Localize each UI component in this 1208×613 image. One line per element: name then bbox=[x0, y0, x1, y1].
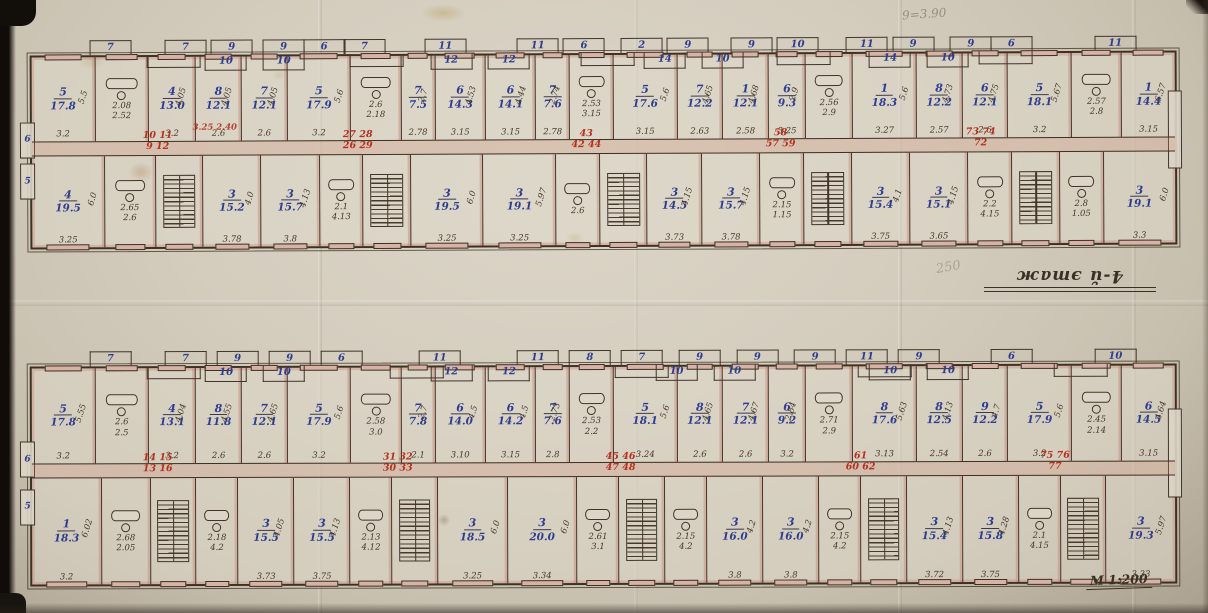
balcony-number: 8 bbox=[570, 351, 610, 364]
fixture-dim: 3.15 bbox=[582, 109, 601, 119]
kitchen-bath-cell: 2.134.12 bbox=[350, 478, 392, 584]
room-area: 18.5 bbox=[460, 531, 486, 543]
bathtub-icon bbox=[106, 78, 138, 89]
dim-width: 3.75 bbox=[871, 232, 890, 242]
dim-depth: 5.6 bbox=[898, 86, 912, 102]
fixture-dim: 2.68 bbox=[116, 533, 135, 543]
room-cell: 315.13.654.15 bbox=[910, 152, 969, 244]
sink-icon bbox=[825, 88, 834, 97]
dim-depth: 5.55 bbox=[73, 403, 88, 424]
fixture-dim: 1.15 bbox=[773, 210, 792, 220]
balcony-number: 11 bbox=[518, 351, 558, 364]
room-area: 19.5 bbox=[55, 202, 81, 214]
bathtub-icon bbox=[361, 77, 391, 88]
fixture-dim: 2.1 bbox=[334, 202, 348, 212]
entrance-porch-tab bbox=[580, 53, 634, 66]
dim-width: 2.6 bbox=[258, 451, 272, 461]
fixture-dim: 2.15 bbox=[773, 200, 792, 210]
balcony-number: 10 bbox=[703, 52, 743, 65]
bathtub-icon bbox=[578, 76, 604, 87]
staircase-cell bbox=[600, 153, 648, 245]
bathtub-icon bbox=[115, 180, 145, 191]
corridor: 14 1513 1631 3230 3345 4647 486160 6275 … bbox=[32, 461, 1175, 479]
fixture-dim: 2.08 bbox=[112, 101, 131, 111]
balcony-number: 9 bbox=[270, 352, 310, 365]
window-mark bbox=[674, 580, 699, 586]
dim-width: 3.78 bbox=[223, 235, 242, 245]
sink-icon bbox=[1092, 405, 1101, 414]
room-number: 3 bbox=[257, 518, 275, 531]
balcony-number: 6 bbox=[991, 350, 1031, 363]
apartment-numbers-line: 9 12 bbox=[143, 141, 173, 152]
window-mark bbox=[769, 241, 795, 247]
dim-width: 3.2 bbox=[1033, 125, 1047, 135]
room-number: 5 bbox=[54, 403, 72, 416]
staircase-cell bbox=[156, 155, 204, 247]
room-number: 6 bbox=[451, 402, 469, 415]
dim-width: 3.15 bbox=[1139, 449, 1158, 459]
dim-width: 3.2 bbox=[56, 129, 70, 139]
red-dimension-note: 3.25 2.40 bbox=[193, 123, 237, 133]
dim-depth: 5.6 bbox=[333, 88, 347, 104]
room-number: 3 bbox=[726, 517, 744, 530]
kitchen-bath-cell: 2.24.15 bbox=[968, 152, 1012, 244]
sink-icon bbox=[587, 89, 596, 98]
room-number: 5 bbox=[1031, 401, 1049, 414]
dim-width: 2.6 bbox=[212, 451, 226, 461]
apartment-numbers-line: 60 62 bbox=[846, 462, 876, 473]
balcony-number: 10 bbox=[778, 38, 818, 51]
pencil-note-middle: 250 bbox=[935, 258, 962, 277]
room-number: 3 bbox=[511, 187, 529, 200]
room-number: 3 bbox=[981, 516, 999, 529]
fixture-dim: 2.15 bbox=[830, 531, 849, 541]
room-cell: 319.53.256.0 bbox=[411, 154, 484, 246]
bathtub-icon bbox=[673, 509, 698, 520]
sink-icon bbox=[1035, 521, 1044, 530]
building-outline: 65517.83.25.52.082.52413.03.24.05812.12.… bbox=[30, 51, 1178, 250]
dim-width: 2.54 bbox=[930, 449, 949, 459]
balcony-number: 10 bbox=[714, 365, 754, 378]
sink-icon bbox=[1077, 189, 1086, 198]
kitchen-bath-cell: 2.154.2 bbox=[819, 476, 861, 582]
balcony-tab: 14 bbox=[644, 53, 686, 69]
dim-width: 3.2 bbox=[60, 572, 74, 582]
dim-width: 3.25 bbox=[510, 233, 529, 243]
window-mark bbox=[115, 244, 145, 250]
dim-width: 3.8 bbox=[728, 571, 742, 581]
dim-width: 3.15 bbox=[636, 126, 655, 136]
stair-flight-icon bbox=[157, 500, 189, 561]
fixture-dim: 4.2 bbox=[210, 543, 224, 553]
kitchen-bath-cell: 2.154.2 bbox=[665, 477, 707, 583]
dim-width: 2.78 bbox=[409, 127, 428, 137]
room-number: 3 bbox=[926, 516, 944, 529]
balcony-number: 11 bbox=[1095, 37, 1135, 50]
stair-flight-icon bbox=[399, 500, 431, 561]
balcony-number: 11 bbox=[518, 39, 558, 52]
fixture-dim: 4.15 bbox=[980, 210, 999, 220]
room-cell: 320.03.346.0 bbox=[508, 477, 578, 583]
dim-width: 2.58 bbox=[736, 126, 755, 136]
bathtub-icon bbox=[585, 509, 610, 520]
bathtub-icon bbox=[361, 394, 391, 405]
balcony-tab: 10 bbox=[927, 364, 969, 380]
room-area: 19.5 bbox=[434, 201, 460, 213]
dim-width: 3.2 bbox=[780, 450, 794, 460]
dim-depth: 5.63 bbox=[895, 401, 910, 422]
balcony-number: 10 bbox=[928, 364, 968, 377]
paper-stain bbox=[420, 4, 466, 22]
fixture-dim: 2.6 bbox=[123, 213, 137, 223]
kitchen-bath-cell: 2.6 bbox=[556, 154, 600, 246]
scan-edge-shadow bbox=[0, 603, 1208, 613]
fixture-dim: 1.05 bbox=[1072, 209, 1091, 219]
dim-width: 3.8 bbox=[284, 234, 298, 244]
staircase-cell bbox=[363, 154, 411, 246]
fixture-dim: 2.61 bbox=[589, 532, 608, 542]
dim-depth: 4.2 bbox=[801, 518, 815, 534]
fixture-dim: 4.15 bbox=[1030, 541, 1049, 551]
staircase-cell bbox=[619, 477, 665, 583]
stair-flight-icon bbox=[1019, 171, 1052, 224]
dim-depth: 2.7 bbox=[417, 404, 431, 420]
stair-flight-icon bbox=[370, 174, 403, 227]
window-mark bbox=[565, 242, 591, 248]
room-number: 3 bbox=[872, 185, 890, 198]
dim-width: 2.63 bbox=[690, 126, 709, 136]
window-mark bbox=[870, 579, 897, 585]
dim-depth: 4.13 bbox=[298, 188, 313, 209]
room-area: 17.6 bbox=[632, 97, 658, 109]
room-number: 3 bbox=[438, 187, 456, 200]
fixture-dim: 4.2 bbox=[679, 542, 693, 552]
fixture-dim: 2.18 bbox=[366, 110, 385, 120]
dim-depth: 6.0 bbox=[1158, 187, 1172, 203]
dim-width: 3.27 bbox=[875, 125, 894, 135]
room-number: 4 bbox=[59, 189, 77, 202]
kitchen-bath-cell: 2.151.15 bbox=[760, 153, 804, 245]
room-cell: 316.03.84.2 bbox=[763, 476, 819, 582]
room-area: 17.6 bbox=[872, 415, 898, 427]
room-number: 5 bbox=[1031, 82, 1049, 95]
room-area: 16.0 bbox=[778, 530, 804, 542]
window-mark bbox=[205, 581, 230, 587]
room-number: 1 bbox=[1140, 82, 1158, 95]
room-area: 15.4 bbox=[868, 199, 894, 211]
balcony-number: 9 bbox=[737, 351, 777, 364]
fixture-dim: 4.12 bbox=[362, 543, 381, 553]
scan-edge-shadow bbox=[1202, 0, 1208, 613]
fixture-dim: 2.52 bbox=[112, 111, 131, 121]
room-number: 3 bbox=[281, 188, 299, 201]
fixture-dim: 2.8 bbox=[1074, 199, 1088, 209]
dim-width: 3.75 bbox=[313, 572, 332, 582]
sink-icon bbox=[212, 523, 221, 532]
balcony-number: 11 bbox=[420, 351, 460, 364]
dim-depth: 5.6 bbox=[1053, 403, 1067, 419]
apartment-numbers-red: 45 4647 48 bbox=[606, 452, 636, 474]
staircase-cell bbox=[392, 477, 438, 583]
room-number: 6 bbox=[502, 402, 520, 415]
apartment-numbers-red: 14 1513 16 bbox=[143, 453, 173, 475]
fixture-dim: 2.71 bbox=[820, 416, 839, 426]
balcony-tab: 12 bbox=[488, 53, 530, 69]
dim-width: 3.72 bbox=[925, 570, 944, 580]
room-area: 19.1 bbox=[507, 200, 533, 212]
dim-width: 3.8 bbox=[784, 571, 798, 581]
entrance-porch-tab bbox=[147, 55, 201, 68]
room-cell: 118.33.26.02 bbox=[32, 478, 102, 584]
entrance-porch-tab bbox=[615, 365, 669, 378]
dim-width: 3.15 bbox=[451, 127, 470, 137]
loggia-number: 5 bbox=[24, 503, 30, 512]
stair-flight-icon bbox=[626, 499, 658, 560]
window-mark bbox=[629, 580, 656, 586]
room-cell: 315.53.754.13 bbox=[294, 478, 350, 584]
dim-width: 3.25 bbox=[59, 235, 78, 245]
fixture-dim: 2.58 bbox=[366, 417, 385, 427]
floor-caption-text: 4-й этаж bbox=[1016, 266, 1123, 286]
window-mark bbox=[977, 240, 1003, 246]
sink-icon bbox=[366, 522, 375, 531]
window-mark bbox=[814, 241, 842, 247]
room-cell: 315.53.734.05 bbox=[238, 478, 294, 584]
dim-depth: 5.97 bbox=[1154, 515, 1169, 536]
room-number: 1 bbox=[876, 83, 894, 96]
sink-icon bbox=[587, 406, 596, 415]
balcony-number: 2 bbox=[622, 39, 662, 52]
floor-caption-underline bbox=[984, 287, 1156, 292]
entrance-porch-tab bbox=[1054, 364, 1108, 377]
room-cell: 314.53.734.15 bbox=[647, 153, 702, 245]
room-cell: 315.83.754.28 bbox=[963, 476, 1019, 582]
fixture-dim: 2.57 bbox=[1087, 96, 1106, 106]
pencil-note-top-right: 9=3.90 bbox=[902, 5, 947, 22]
loggia-number: 6 bbox=[24, 455, 30, 464]
apartment-numbers-red: 5857 59 bbox=[766, 128, 796, 150]
balcony-number: 7 bbox=[622, 351, 662, 364]
apartment-numbers-red: 31 3230 33 bbox=[383, 453, 413, 475]
dim-depth: 5.6 bbox=[333, 405, 347, 421]
kitchen-bath-cell: 2.682.05 bbox=[102, 478, 151, 584]
room-area: 19.3 bbox=[1128, 529, 1154, 541]
sink-icon bbox=[371, 90, 380, 99]
balcony-number: 10 bbox=[206, 55, 246, 68]
balcony-number: 7 bbox=[165, 41, 205, 54]
fixture-dim: 4.2 bbox=[833, 541, 847, 551]
apartment-numbers-line: 57 59 bbox=[766, 139, 796, 150]
window-mark bbox=[373, 243, 401, 249]
sink-icon bbox=[825, 406, 834, 415]
balcony-number: 11 bbox=[847, 38, 887, 51]
bathtub-icon bbox=[328, 179, 354, 190]
room-cell: 318.53.256.0 bbox=[438, 477, 508, 583]
fixture-dim: 2.9 bbox=[822, 108, 836, 118]
bathtub-icon bbox=[1082, 73, 1112, 84]
dim-width: 2.57 bbox=[930, 125, 949, 135]
balcony-number: 6 bbox=[991, 37, 1031, 50]
room-cell: 315.43.754.1 bbox=[852, 152, 911, 244]
room-number: 3 bbox=[782, 517, 800, 530]
balcony-tab: 12 bbox=[488, 365, 530, 381]
dim-depth: 4.15 bbox=[738, 186, 753, 207]
window-mark bbox=[586, 580, 611, 586]
balcony-number: 14 bbox=[870, 52, 910, 65]
room-area: 18.1 bbox=[1027, 96, 1053, 108]
window-mark bbox=[160, 581, 187, 587]
balcony-number: 9 bbox=[264, 40, 304, 53]
dim-width: 3.3 bbox=[1133, 231, 1147, 241]
bathtub-icon bbox=[204, 510, 229, 521]
balcony-number: 9 bbox=[668, 39, 708, 52]
room-number: 3 bbox=[533, 517, 551, 530]
room-number: 5 bbox=[310, 402, 328, 415]
balcony-number: 10 bbox=[206, 366, 246, 379]
balcony-number: 10 bbox=[1095, 350, 1135, 363]
dim-width: 2.6 bbox=[978, 449, 992, 459]
bathtub-icon bbox=[565, 183, 591, 194]
staircase-cell bbox=[1012, 152, 1060, 244]
dim-width: 3.73 bbox=[257, 572, 276, 582]
dim-width: 3.10 bbox=[451, 450, 470, 460]
sink-icon bbox=[835, 521, 844, 530]
room-area: 17.9 bbox=[1027, 414, 1053, 426]
fixture-dim: 2.6 bbox=[571, 206, 585, 216]
dim-width: 2.1 bbox=[411, 451, 425, 461]
apartment-numbers-red: 73 7472 bbox=[966, 127, 996, 149]
room-number: 3 bbox=[1131, 184, 1149, 197]
balcony-number: 9 bbox=[795, 350, 835, 363]
dim-depth: 6.02 bbox=[80, 517, 95, 538]
room-cell: 315.43.724.13 bbox=[907, 476, 963, 582]
fixture-dim: 2.6 bbox=[115, 418, 129, 428]
balcony-tab: 14 bbox=[869, 52, 911, 68]
sink-icon bbox=[121, 523, 130, 532]
stair-flight-icon bbox=[163, 175, 196, 228]
window-mark bbox=[329, 243, 355, 249]
kitchen-bath-cell: 2.14.13 bbox=[320, 155, 364, 247]
room-number: 5 bbox=[310, 85, 328, 98]
scanned-floor-plan-sheet: 9=3.90 7799671111629910119961165517.83.2… bbox=[0, 0, 1208, 613]
fixture-dim: 3.0 bbox=[369, 427, 383, 437]
window-mark bbox=[828, 579, 853, 585]
window-mark bbox=[111, 581, 140, 587]
floor-caption: 4-й этаж bbox=[984, 266, 1156, 292]
apartment-numbers-line: 26 29 bbox=[343, 141, 373, 152]
balcony-number: 6 bbox=[322, 352, 362, 365]
dim-depth: 4.0 bbox=[243, 191, 257, 207]
room-number: 3 bbox=[464, 518, 482, 531]
balcony-tab: 10 bbox=[713, 365, 755, 381]
window-mark bbox=[1022, 240, 1050, 246]
bathtub-icon bbox=[1027, 508, 1052, 519]
balcony-number: 9 bbox=[212, 41, 252, 54]
dim-depth: 4.15 bbox=[946, 185, 961, 206]
apartment-numbers-line: 47 48 bbox=[606, 463, 636, 474]
stair-flight-icon bbox=[811, 172, 844, 225]
room-area: 18.3 bbox=[872, 96, 898, 108]
dim-width: 3.2 bbox=[312, 451, 326, 461]
room-number: 3 bbox=[722, 186, 740, 199]
room-cell: 319.33.335.97 bbox=[1106, 476, 1175, 582]
room-cell: 419.53.256.0 bbox=[32, 156, 105, 248]
loggia-number: 6 bbox=[24, 136, 30, 145]
balcony-number: 14 bbox=[645, 53, 685, 66]
balcony-tab: 10 bbox=[702, 52, 744, 68]
sink-icon bbox=[1092, 86, 1101, 95]
balcony-tab: 10 bbox=[263, 366, 305, 382]
dim-width: 2.6 bbox=[258, 128, 272, 138]
dim-depth: 4.5 bbox=[467, 404, 481, 420]
window-mark bbox=[610, 242, 638, 248]
room-area: 18.1 bbox=[632, 415, 658, 427]
apartment-numbers-line: 72 bbox=[966, 138, 996, 149]
balcony-number: 10 bbox=[264, 366, 304, 379]
bathtub-icon bbox=[815, 393, 843, 404]
stair-flight-icon bbox=[607, 173, 640, 226]
scan-edge-shadow bbox=[0, 0, 16, 613]
fixture-dim: 2.13 bbox=[362, 532, 381, 542]
fixture-dim: 3.1 bbox=[591, 542, 605, 552]
fixture-dim: 2.2 bbox=[983, 199, 997, 209]
fixture-dim: 2.9 bbox=[822, 426, 836, 436]
bathtub-icon bbox=[769, 177, 795, 188]
dim-width: 3.73 bbox=[665, 233, 684, 243]
kitchen-bath-cell: 2.14.15 bbox=[1019, 476, 1061, 582]
dim-width: 3.15 bbox=[501, 127, 520, 137]
balcony-number: 9 bbox=[951, 37, 991, 50]
sink-icon bbox=[117, 408, 126, 417]
room-number: 3 bbox=[1132, 516, 1150, 529]
fixture-dim: 2.05 bbox=[116, 543, 135, 553]
balcony-tab: 10 bbox=[263, 54, 305, 70]
dim-depth: 5.67 bbox=[1050, 83, 1065, 104]
balcony-tab: 12 bbox=[430, 54, 472, 70]
room-number: 3 bbox=[666, 186, 684, 199]
sink-icon bbox=[371, 407, 380, 416]
dim-depth: 6.0 bbox=[559, 519, 573, 535]
staircase-cell bbox=[151, 478, 197, 584]
kitchen-bath-cell: 2.652.6 bbox=[105, 156, 156, 248]
room-area: 18.3 bbox=[54, 532, 80, 544]
dim-depth: 6.0 bbox=[465, 190, 479, 206]
fixture-dim: 2.8 bbox=[1090, 107, 1104, 117]
balcony-number: 12 bbox=[489, 365, 529, 378]
balcony-tab: 10 bbox=[205, 366, 247, 382]
kitchen-bath-cell: 2.81.05 bbox=[1060, 151, 1104, 243]
dim-depth: 6.0 bbox=[86, 191, 100, 207]
scan-corner-shadow bbox=[0, 0, 36, 26]
dim-width: 3.65 bbox=[929, 232, 948, 242]
room-cell: 319.13.36.0 bbox=[1104, 151, 1176, 243]
room-cell: 315.73.784.15 bbox=[702, 153, 761, 245]
window-mark bbox=[165, 244, 193, 250]
room-area: 16.0 bbox=[722, 530, 748, 542]
room-area: 19.1 bbox=[1127, 198, 1153, 210]
dim-width: 3.34 bbox=[533, 571, 552, 581]
fixture-dim: 2.18 bbox=[208, 533, 227, 543]
entrance-porch-tab bbox=[147, 366, 201, 379]
room-area: 17.9 bbox=[306, 416, 332, 428]
window-mark bbox=[1069, 240, 1095, 246]
sink-icon bbox=[337, 192, 346, 201]
balcony-number: 7 bbox=[344, 40, 384, 53]
dim-width: 2.78 bbox=[543, 127, 562, 137]
room-cell: 315.23.784.0 bbox=[203, 155, 262, 247]
floor-plan-strip-upper: 7799671111629910119961165517.83.25.52.08… bbox=[30, 33, 1186, 266]
balcony-number: 9 bbox=[893, 38, 933, 51]
